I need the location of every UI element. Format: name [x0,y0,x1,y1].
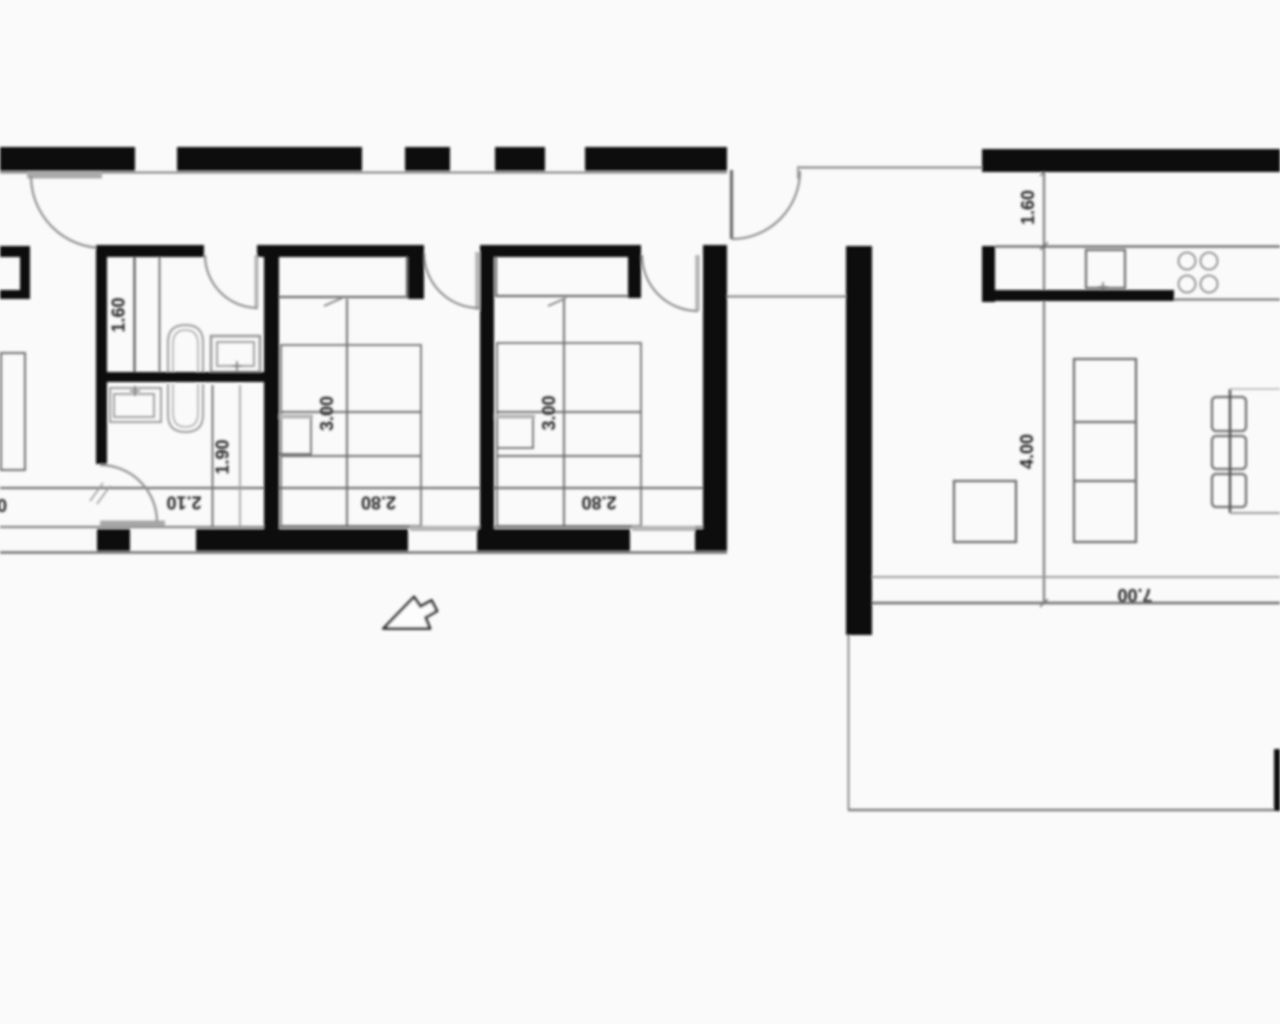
svg-text:3.00: 3.00 [317,396,337,431]
svg-text:2.80: 2.80 [361,493,396,513]
svg-text:2.10: 2.10 [166,493,201,513]
svg-text:1.60: 1.60 [109,297,129,332]
svg-text:0: 0 [0,495,7,515]
svg-text:1.60: 1.60 [1018,190,1038,225]
svg-text:3.00: 3.00 [539,395,559,430]
svg-text:2.80: 2.80 [581,493,616,513]
svg-text:7.00: 7.00 [1117,585,1152,605]
svg-text:1.90: 1.90 [213,439,233,474]
svg-text:4.00: 4.00 [1017,434,1037,469]
